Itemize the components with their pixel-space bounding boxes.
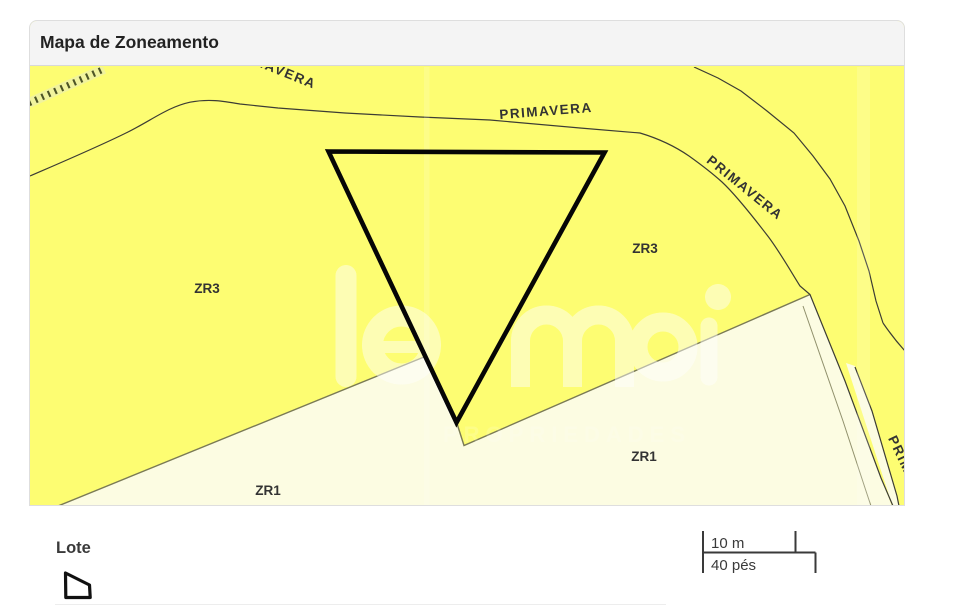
svg-text:PROPRIEDADES: PROPRIEDADES bbox=[443, 422, 691, 447]
svg-text:ZR3: ZR3 bbox=[194, 281, 220, 296]
svg-text:10 m: 10 m bbox=[711, 535, 744, 552]
svg-text:ZR1: ZR1 bbox=[255, 483, 281, 498]
svg-text:40 pés: 40 pés bbox=[711, 557, 756, 574]
svg-text:ZR3: ZR3 bbox=[632, 241, 658, 256]
svg-text:ZR1: ZR1 bbox=[631, 449, 657, 464]
